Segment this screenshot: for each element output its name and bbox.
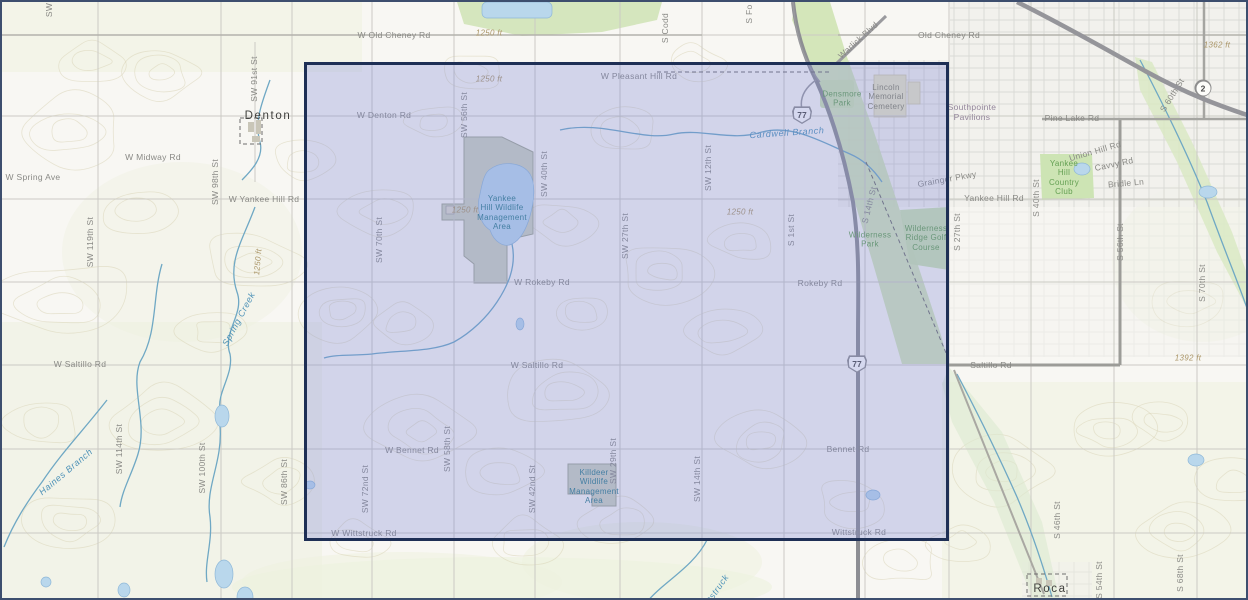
map-label: 1250 ft (476, 28, 503, 37)
map-label: W Saltillo Rd (54, 359, 107, 369)
map-label: SW 114th St (114, 424, 124, 474)
map-label: Southpointe Pavilions (948, 102, 997, 122)
map-label: SW 119th St (85, 217, 95, 267)
map-label: Old Cheney Rd (918, 30, 980, 40)
selection-rectangle[interactable] (304, 62, 949, 541)
map-label: SW 86th St (279, 459, 289, 505)
map-label: W Spring Ave (6, 172, 61, 182)
map-label: Warlick Blvd (836, 20, 880, 61)
map-label: Spring Creek (220, 290, 257, 348)
map-label: SW 91st St (249, 56, 259, 102)
map-label: 1250 ft (252, 248, 264, 275)
map-label: Haines Branch (37, 446, 95, 497)
map-label: Pine Lake Rd (1045, 113, 1100, 123)
map-label: Yankee Hill Country Club (1049, 159, 1079, 197)
map-label: Yankee Hill Rd (964, 193, 1024, 203)
map-label: S 40th St (1031, 179, 1041, 217)
map-label: Roca (1033, 583, 1066, 597)
map-label: S 46th St (1052, 501, 1062, 539)
map-label: Bridle Ln (1108, 176, 1145, 189)
map-canvas[interactable]: W Old Cheney Rd1250 ft1250 ftS CoddS FoS… (0, 0, 1248, 600)
map-label: Union Hill Rd (1068, 139, 1122, 163)
map-label: S 70th St (1197, 264, 1207, 302)
map-label: W Midway Rd (125, 152, 181, 162)
map-label: S Fo (744, 4, 754, 23)
map-label: Saltillo Rd (970, 360, 1012, 370)
map-label: S 54th St (1094, 561, 1104, 599)
map-label: SW 98th St (210, 159, 220, 205)
map-label: Denton (245, 110, 292, 124)
map-label: S 27th St (952, 213, 962, 251)
map-label: 1392 ft (1175, 353, 1202, 362)
map-label: S 60th St (1158, 76, 1186, 113)
map-label: W Yankee Hill Rd (229, 194, 300, 204)
state-highway-shield: 2 (1195, 80, 1212, 97)
map-label: Cavvy Rd (1094, 155, 1134, 173)
map-label: W Old Cheney Rd (358, 30, 431, 40)
map-label: S Codd (660, 13, 670, 43)
map-label: S 68th St (1175, 554, 1185, 592)
map-label: SW 100th St (197, 442, 207, 493)
map-label: Wittstruck (697, 572, 732, 600)
map-label: SW (44, 3, 54, 17)
map-label: S 56th St (1115, 223, 1125, 261)
map-label: 1362 ft (1204, 40, 1231, 49)
